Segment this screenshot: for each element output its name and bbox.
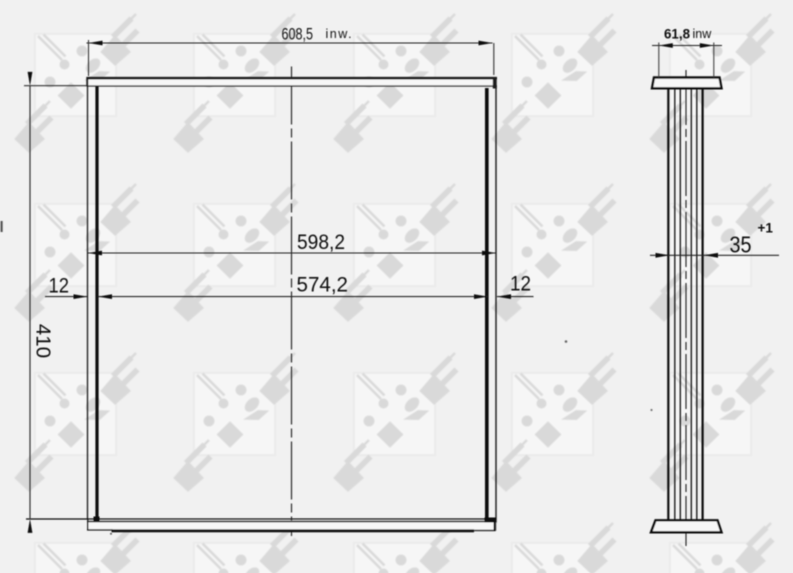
svg-text:+1: +1	[758, 221, 774, 236]
svg-text:598,2: 598,2	[297, 230, 345, 254]
svg-text:inw: inw	[693, 27, 713, 41]
svg-text:inw.: inw.	[326, 27, 354, 41]
svg-text:35: 35	[730, 232, 752, 258]
svg-text:608,5: 608,5	[282, 26, 314, 44]
svg-text:12: 12	[510, 273, 531, 296]
svg-text:12: 12	[49, 275, 70, 298]
svg-text:574,2: 574,2	[297, 273, 349, 297]
svg-text:61,8: 61,8	[664, 26, 690, 42]
svg-text:410: 410	[32, 324, 55, 358]
